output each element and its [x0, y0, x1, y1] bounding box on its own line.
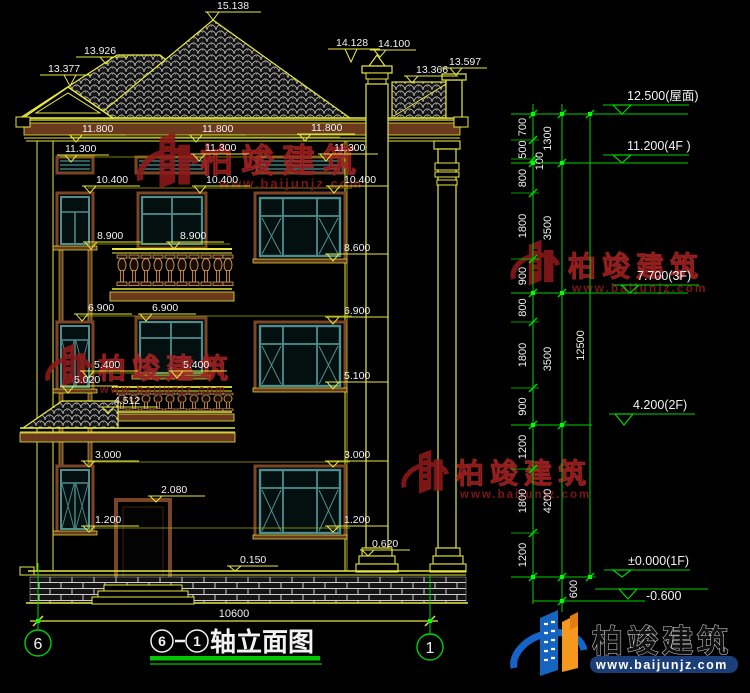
axis-bubble-1-label: 1: [426, 640, 435, 657]
elevation-label: 7.700(3F): [637, 269, 691, 283]
dim-annotation: 11.800: [202, 123, 233, 135]
dim-annotation: 13.377: [48, 63, 80, 75]
cad-grip: [36, 619, 40, 623]
company-logo-brand: 柏竣建筑: [592, 624, 732, 659]
cad-grip: [531, 161, 535, 165]
dim-value: 4200: [542, 489, 554, 513]
dim-annotation: 5.400: [183, 359, 209, 371]
dim-annotation: 5.100: [344, 370, 370, 382]
right-parapet: [442, 74, 466, 118]
dim-annotation: 0.620: [372, 538, 398, 550]
cad-grip: [588, 112, 592, 116]
axis-bubble-6-label: 6: [34, 636, 43, 653]
dim-annotation: 10.400: [96, 174, 128, 186]
dim-value: 3500: [542, 216, 554, 240]
dim-value: 1300: [542, 126, 554, 150]
dim-annotation: 15.138: [217, 0, 249, 12]
cad-grip: [560, 112, 564, 116]
elevation-label: 12.500(屋面): [627, 89, 699, 103]
dim-annotation: 3.000: [95, 449, 121, 461]
entry-door: [116, 500, 170, 587]
elevation-drawing-canvas: 10600 6 1 6 1 轴立面图 柏竣建筑 www.baijunjz.com…: [0, 0, 750, 688]
dim-value: 3500: [542, 347, 554, 371]
dim-value: 900: [517, 397, 529, 415]
dim-annotation: 8.900: [97, 230, 123, 242]
dim-annotation: 14.128: [336, 37, 368, 49]
title-label: 轴立面图: [210, 627, 314, 657]
watermark-brand: 柏竣建筑: [456, 457, 592, 489]
cad-grip: [531, 291, 535, 295]
cad-grip: [531, 423, 535, 427]
dim-annotation: 11.300: [65, 143, 96, 155]
title-axis-start: 6: [158, 633, 166, 649]
cad-grip: [428, 619, 432, 623]
cad-grip: [531, 575, 535, 579]
dim-annotation: 5.020: [74, 374, 100, 386]
dim-annotation: 10.400: [206, 174, 238, 186]
dim-annotation: 11.800: [82, 123, 113, 135]
dim-annotation: 8.600: [344, 242, 370, 254]
cad-grip: [560, 599, 564, 603]
dim-annotation: 8.900: [180, 230, 206, 242]
cad-grip: [560, 423, 564, 427]
dim-annotation: 13.366: [416, 64, 448, 76]
dim-annotation: 6.900: [152, 302, 178, 314]
dim-value: 600: [568, 580, 580, 598]
dim-value: 1800: [517, 489, 529, 513]
window-4f-right: [253, 193, 347, 263]
dim-value: 100: [534, 152, 546, 170]
dim-value: 1800: [517, 214, 529, 238]
overall-width-dim: 10600: [219, 608, 250, 620]
dim-annotation: 4.512: [114, 395, 140, 407]
cad-grip: [531, 112, 535, 116]
dim-annotation: 0.150: [240, 554, 266, 566]
dim-value: 12500: [575, 330, 587, 361]
dim-annotation: 14.100: [378, 38, 410, 50]
dim-value: 1800: [517, 343, 529, 367]
dim-annotation: 3.000: [344, 449, 370, 461]
entry-steps: [92, 585, 194, 604]
elevation-label: ±0.000(1F): [628, 554, 689, 568]
watermark-url: www.baijunjz.com: [218, 176, 363, 191]
left-corner-pilaster: [37, 141, 53, 571]
dim-value: 1200: [517, 435, 529, 459]
dim-value: 800: [517, 298, 529, 316]
dim-annotation: 5.400: [94, 359, 120, 371]
dim-annotation: 13.926: [84, 45, 116, 57]
dim-annotation: 6.900: [344, 305, 370, 317]
dim-annotation: 1.200: [95, 514, 121, 526]
title-axis-end: 1: [193, 633, 201, 649]
dim-annotation: 11.800: [311, 122, 342, 134]
elevation-label: -0.600: [646, 589, 681, 603]
cad-grip: [560, 161, 564, 165]
cad-grip: [560, 291, 564, 295]
dim-value: 900: [517, 267, 529, 285]
elevation-label: 4.200(2F): [633, 398, 687, 412]
dim-annotation: 10.400: [344, 174, 376, 186]
dim-annotation: 2.080: [161, 484, 187, 496]
dim-value: 1200: [517, 543, 529, 567]
dim-value: 500: [517, 140, 529, 158]
dim-value: 800: [517, 169, 529, 187]
cad-grip: [560, 575, 564, 579]
cad-grip: [588, 575, 592, 579]
dim-annotation: 13.597: [449, 56, 481, 68]
dim-value: 700: [517, 118, 529, 136]
elevation-label: 11.200(4F ): [627, 139, 691, 153]
dim-annotation: 1.200: [344, 514, 370, 526]
company-logo-url: www.baijunjz.com: [595, 658, 728, 672]
dim-annotation: 6.900: [88, 302, 114, 314]
title-underline-thick: [150, 656, 320, 661]
dim-annotation: 11.300: [334, 142, 365, 154]
dim-annotation: 11.300: [205, 142, 236, 154]
louver-left: [57, 157, 93, 173]
